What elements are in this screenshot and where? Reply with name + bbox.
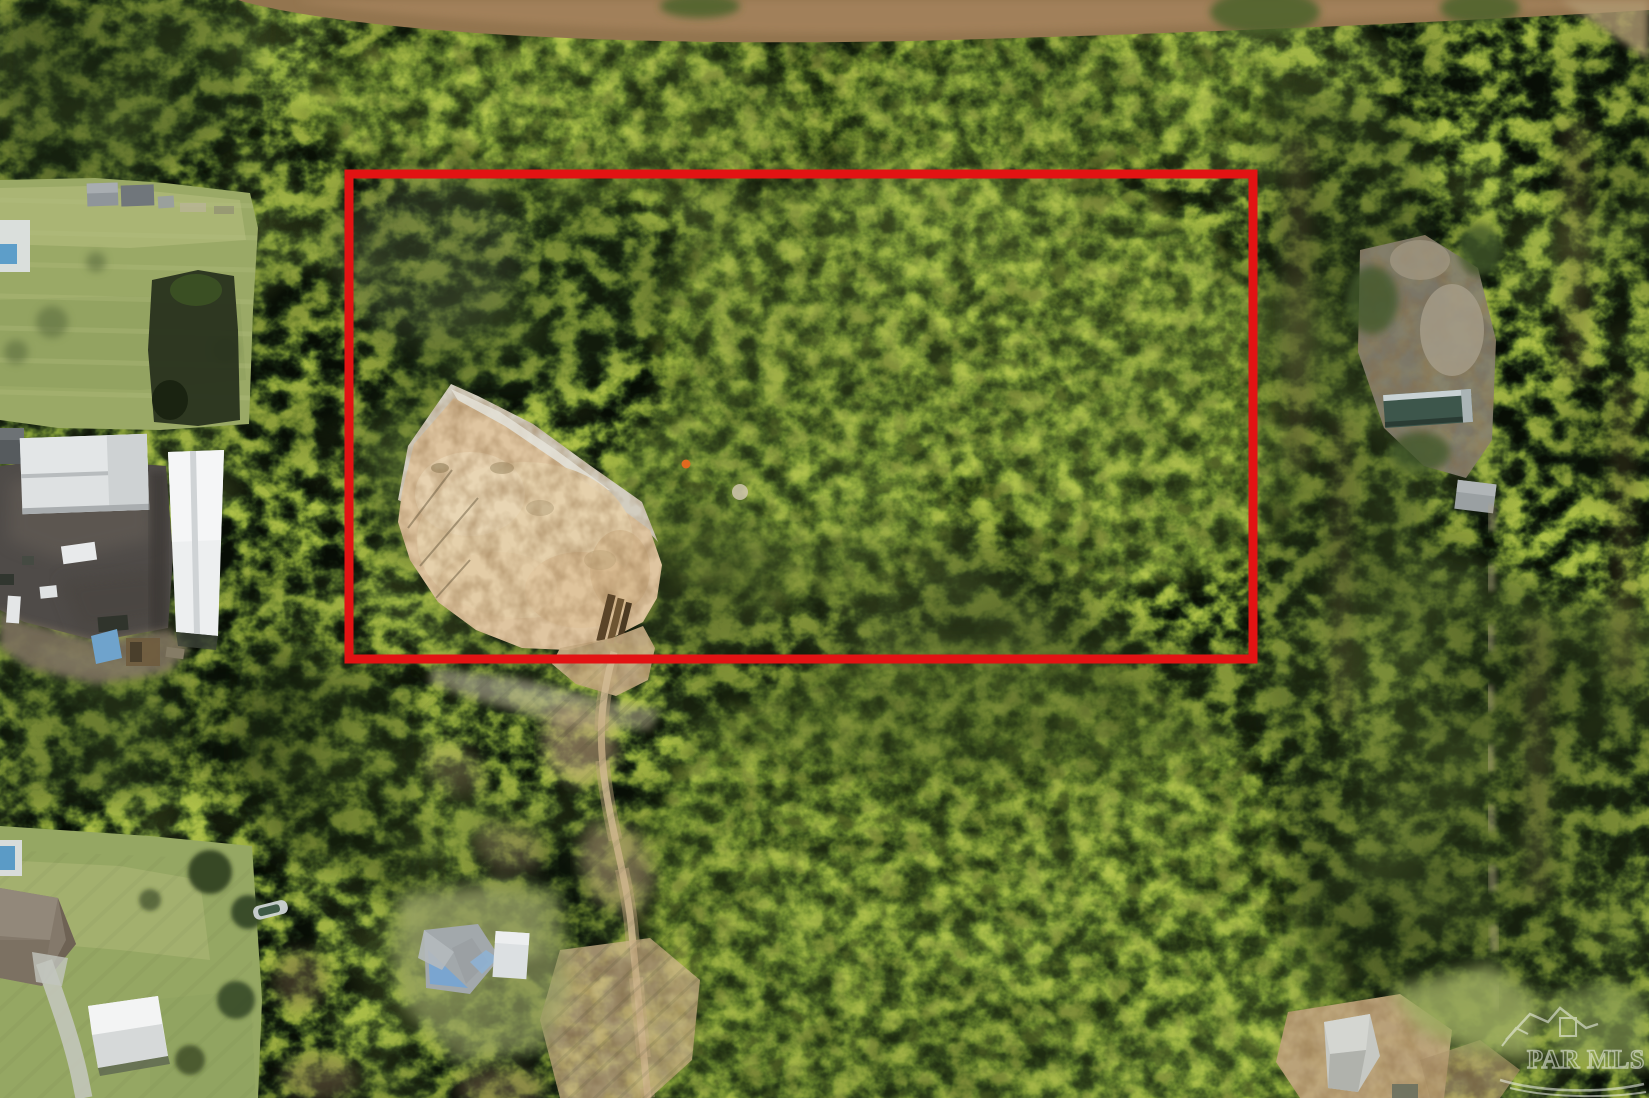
- svg-text:PAR MLS: PAR MLS: [1527, 1045, 1645, 1074]
